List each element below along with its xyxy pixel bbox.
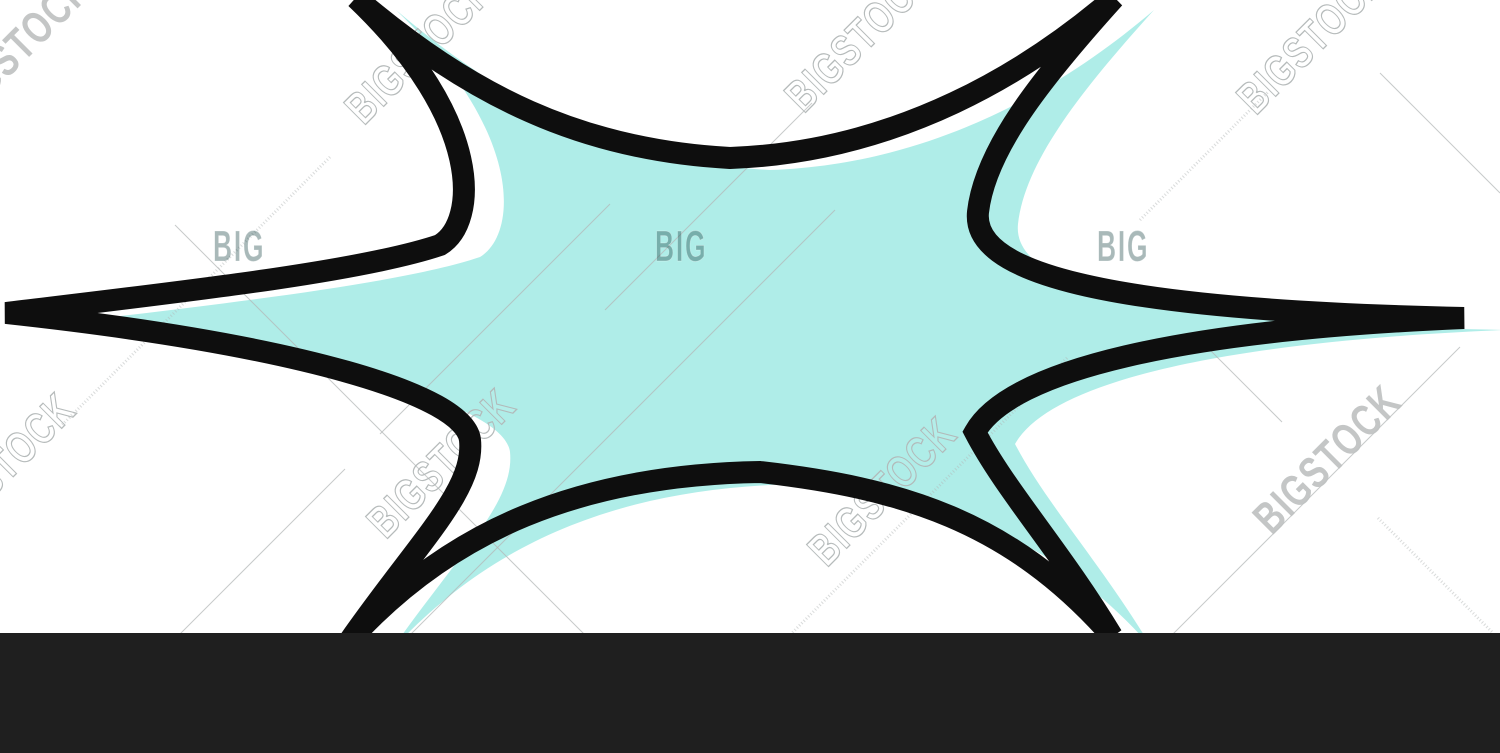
watermark-line: [170, 469, 345, 644]
watermark-big-text: BIG: [1097, 221, 1149, 271]
watermark-line: [1210, 350, 1282, 422]
watermark-brand-text: BIGSTOCK: [1244, 376, 1412, 544]
watermark-brand-text: BIGSTOCK: [0, 0, 101, 131]
watermark-brand-text: BIGSTOCK: [1228, 0, 1396, 123]
watermark-line: [1380, 73, 1500, 193]
watermark-big-text: BIG: [213, 221, 265, 271]
stock-image-preview: BIGSTOCKBIGSTOCKBIGSTOCKBIGSTOCKBIGSTOCK…: [0, 0, 1500, 753]
watermark-line: [1378, 518, 1492, 632]
watermark-big-text: BIG: [655, 221, 707, 271]
watermark-brand-text: BIGSTOCK: [0, 384, 85, 552]
footer-bar: BIGSTOCK Image ID: 35264681 bigstock.com: [0, 633, 1500, 753]
watermark-line: [1140, 92, 1268, 220]
watermark-brand-text: BIGSTOCK: [776, 0, 944, 121]
